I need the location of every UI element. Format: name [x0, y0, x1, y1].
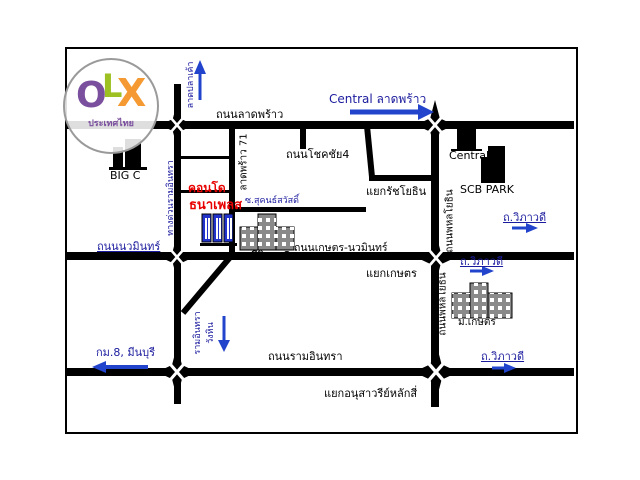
landmark-label-big-c: BIG C [110, 170, 141, 182]
landmark-label-university: ม.เกษตร [458, 317, 496, 328]
landmark-label-central: Central [449, 150, 489, 162]
block-divider-1 [181, 156, 229, 159]
road-label-lat-phrao: ถนนลาดพร้าว [216, 109, 283, 121]
landmark-label-school: สตรีวิทยา2 [238, 250, 291, 262]
direction-label-vibhavadi-mid: ถ.วิภาวดี [460, 256, 503, 268]
junction-label-ratchayothin: แยกรัชโยธิน [366, 186, 426, 198]
road-label-kaset-nawamin: ถนนเกษตร-นวมินทร์ [294, 243, 388, 255]
direction-label-central-lat-phrao: Central ลาดพร้าว [329, 93, 426, 106]
direction-label-vibhavadi-bottom: ถ.วิภาวดี [481, 351, 524, 363]
road-label-lat-phrao-71: ลาดพร้าว 71 [237, 133, 252, 190]
condo-label-line1: คอนโด [188, 182, 226, 195]
road-ram-intra [65, 368, 574, 376]
direction-label-vibhavadi-top: ถ.วิภาวดี [503, 212, 546, 224]
landmark-label-scb-park: SCB PARK [460, 184, 514, 196]
olx-subtitle: ประเทศไทย [65, 120, 157, 129]
direction-label-km8-minburi: กม.8, มีนบุรี [96, 347, 155, 359]
road-label-soi-sukhonthasawat: ซ.สุคนธ์สวัสดิ์ [245, 197, 299, 207]
map-image: ถนนลาดพร้าว ถนนโชคชัย4 Central ลาดพร้าว … [0, 0, 640, 480]
road-label-nawamin: ถนนนวมินทร์ [97, 241, 160, 253]
direction-label-south-2: วังหิน [203, 322, 217, 344]
road-chokchai4-stub [300, 128, 306, 149]
road-expressway-vertical [174, 84, 181, 404]
olx-letter-x: X [117, 74, 146, 112]
condo-label-line2: ธนาเพลส [189, 199, 242, 213]
road-soi-school [232, 207, 366, 212]
road-label-chokchai4: ถนนโชคชัย4 [286, 149, 349, 161]
road-phahonyothin-vertical [431, 121, 439, 407]
road-label-expressway: ทางด่วนรามอินทรา [163, 160, 177, 236]
direction-label-north: ลาดปลาเค้า [183, 62, 197, 109]
road-label-phahonyothin-upper: ถนนพหลโยธิน [443, 189, 458, 252]
road-lat-phrao-71 [229, 128, 235, 256]
olx-watermark-logo: O L X ประเทศไทย [63, 58, 159, 154]
direction-label-south-1: รามอินทรา [190, 311, 204, 354]
road-label-ram-intra: ถนนรามอินทรา [268, 351, 343, 363]
junction-label-kaset: แยกเกษตร [366, 268, 417, 280]
junction-label-lak-si: แยกอนุสาวรีย์หลักสี่ [324, 388, 417, 400]
road-label-phahonyothin-lower: ถนนพหลโยธิน [436, 272, 451, 335]
